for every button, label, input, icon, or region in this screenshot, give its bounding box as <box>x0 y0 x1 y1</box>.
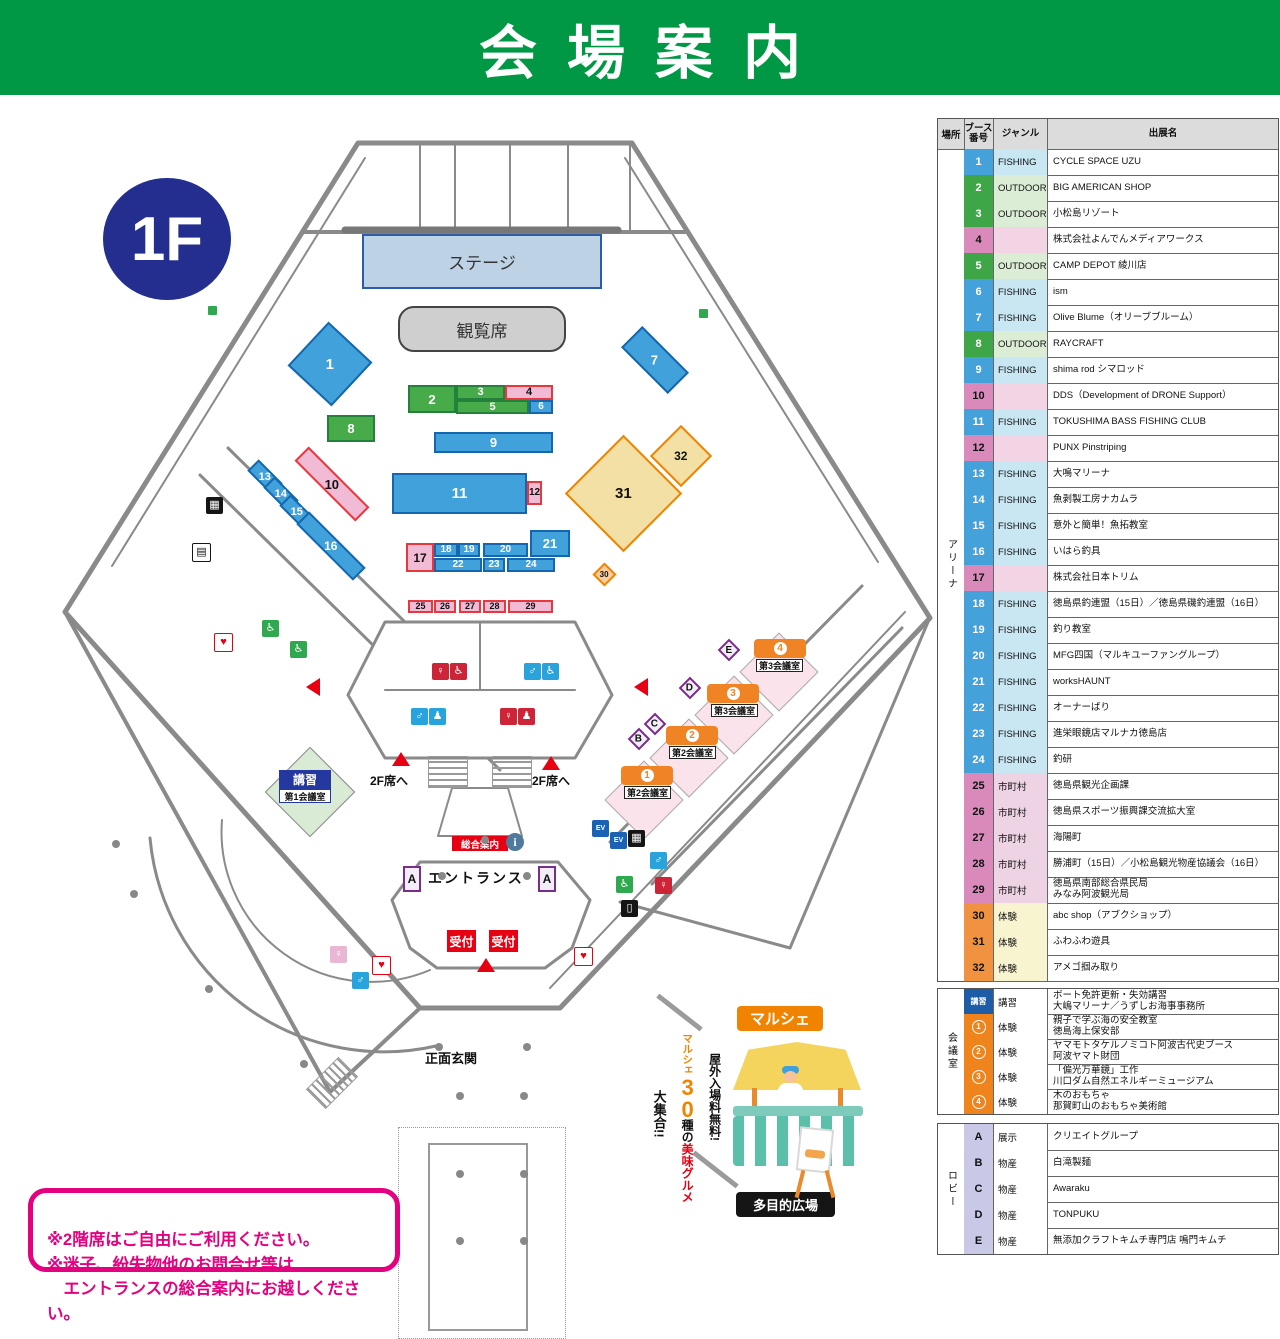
to-2f-text: 2F席へ <box>532 774 570 788</box>
booth-number: 27 <box>465 602 475 611</box>
floor-map: ステージ 観覧席 講習 第1会議室 2F席へ 2F席へ 総合案内 i エントラン… <box>0 95 935 1283</box>
booth-27: 27 <box>459 600 481 613</box>
wheelchair-icon: ♿ <box>262 620 279 637</box>
notice-box: ※2階席はご自由にご利用ください。 ※迷子、紛失物他のお問合せ等は エントランス… <box>28 1188 400 1272</box>
booth-number: 24 <box>525 560 536 570</box>
table-cell-name: ボート免許更新・失効講習 大嶋マリーナ／うずしお海事事務所 <box>1048 989 1278 1014</box>
entrance-arrow <box>477 958 495 972</box>
table-row: D物産TONPUKU <box>964 1202 1278 1229</box>
table-cell-number: 23 <box>964 721 994 747</box>
entrance-arrow <box>306 678 320 696</box>
exit-icon <box>208 306 217 315</box>
table-cell-number: 26 <box>964 799 994 825</box>
table-cell-genre: OUTDOOR <box>994 331 1048 357</box>
marche-badge-label: マルシェ <box>750 1008 810 1029</box>
booth-12: 12 <box>527 481 542 505</box>
booth-23: 23 <box>483 558 505 572</box>
table-cell-name: PUNX Pinstriping <box>1048 435 1278 461</box>
table-row: 20FISHINGMFG四国（マルキユーファングループ） <box>964 643 1278 670</box>
table-row: 13FISHING大鳴マリーナ <box>964 461 1278 488</box>
table-row: 31体験ふわふわ遊具 <box>964 929 1278 956</box>
stage-label: ステージ <box>448 249 516 274</box>
table-header-cell: ブース 番号 <box>964 119 994 149</box>
womens-toilet-icon: ♀ <box>500 708 517 725</box>
table-cell-name: DDS（Development of DRONE Support） <box>1048 383 1278 409</box>
aed-icon: ♥ <box>372 956 391 975</box>
elevator-icon: EV <box>592 820 609 837</box>
table-cell-name: abc shop（アブクショップ） <box>1048 903 1278 929</box>
table-cell-genre: OUTDOOR <box>994 253 1048 279</box>
table-cell-name: 進栄眼鏡店マルナカ徳島店 <box>1048 721 1278 747</box>
wheelchair-icon: ♿ <box>290 641 307 658</box>
booth-number: 21 <box>543 537 557 550</box>
table-cell-genre <box>994 435 1048 461</box>
multi-plaza-badge: 多目的広場 <box>736 1192 835 1217</box>
table-cell-genre: FISHING <box>994 357 1048 383</box>
table-row: 講習講習ボート免許更新・失効講習 大嶋マリーナ／うずしお海事事務所 <box>964 989 1278 1015</box>
audience-seats-label: 観覧席 <box>457 317 508 342</box>
table-cell-number: 13 <box>964 461 994 487</box>
table-cell-number: 11 <box>964 409 994 435</box>
lobby-badge-label: E <box>726 644 733 655</box>
booth-number: 11 <box>452 486 468 501</box>
pillar-dot <box>456 1237 464 1245</box>
meeting-room-badge: 3 <box>707 684 759 703</box>
table-cell-genre: 市町村 <box>994 851 1048 877</box>
place-column: ロビー <box>938 1124 965 1254</box>
main-gate-label: 正面玄関 <box>425 1048 477 1067</box>
coin-locker-icon: ▤ <box>192 543 211 562</box>
booth-24: 24 <box>507 558 555 572</box>
table-cell-number: 9 <box>964 357 994 383</box>
table-cell-name: shima rod シマロッド <box>1048 357 1278 383</box>
booth-number: 2 <box>972 1045 986 1059</box>
table-cell-number: 27 <box>964 825 994 851</box>
table-cell-name: TONPUKU <box>1048 1202 1278 1228</box>
table-row: 28市町村勝浦町（15日）／小松島観光物産協議会（16日） <box>964 851 1278 878</box>
table-cell-number: 24 <box>964 747 994 773</box>
table-row: 2体験ヤマモトタケルノミコト阿波古代史ブース 阿波ヤマト財団 <box>964 1039 1278 1065</box>
mens-toilet-icon: ♂ <box>524 663 541 680</box>
reception-badge: 受付 <box>489 930 518 952</box>
table-cell-number: 14 <box>964 487 994 513</box>
promo-free-text: 屋外入場料無料! <box>708 1053 722 1141</box>
meeting-room-badge: 2 <box>666 726 718 745</box>
table-row: 1体験親子で学ぶ海の安全教室 徳島海上保安部 <box>964 1014 1278 1040</box>
table-row: 12PUNX Pinstriping <box>964 435 1278 462</box>
table-cell-genre: 展示 <box>994 1124 1048 1150</box>
meeting-room-number: 3 <box>727 687 740 700</box>
reception-label: 受付 <box>491 933 515 950</box>
table-cell-genre: 物産 <box>994 1150 1048 1176</box>
promo-free-line: 屋外入場料無料! <box>708 1053 721 1141</box>
table-row: 6FISHINGism <box>964 279 1278 306</box>
table-section-2: ロビーA展示クリエイトグループB物産白滝製麺C物産AwarakuD物産TONPU… <box>937 1123 1279 1255</box>
table-header-row: 場所ブース 番号ジャンル出展名 <box>938 119 1278 150</box>
table-cell-genre: FISHING <box>994 513 1048 539</box>
table-cell-genre: 市町村 <box>994 825 1048 851</box>
table-row: 25市町村徳島県観光企画課 <box>964 773 1278 800</box>
table-cell-name: CAMP DEPOT 綾川店 <box>1048 253 1278 279</box>
table-cell-genre: OUTDOOR <box>994 201 1048 227</box>
table-cell-genre: 体験 <box>994 903 1048 929</box>
multi-plaza-label: 多目的広場 <box>753 1195 818 1214</box>
womens-toilet-icon: ♀ <box>655 877 672 894</box>
table-cell-number: 28 <box>964 851 994 877</box>
table-cell-genre: 体験 <box>994 1039 1048 1064</box>
table-cell-number: 32 <box>964 955 994 981</box>
table-row: 11FISHINGTOKUSHIMA BASS FISHING CLUB <box>964 409 1278 436</box>
booth-number: 20 <box>500 545 511 555</box>
table-cell-name: 親子で学ぶ海の安全教室 徳島海上保安部 <box>1048 1014 1278 1039</box>
pillar-dot <box>112 840 120 848</box>
table-row: 32体験アメゴ掴み取り <box>964 955 1278 982</box>
table-row: A展示クリエイトグループ <box>964 1124 1278 1151</box>
reception-label: 受付 <box>449 933 473 950</box>
exit-icon <box>699 309 708 318</box>
booth-4: 4 <box>505 385 553 400</box>
booth-11: 11 <box>392 473 527 514</box>
booth-number: 10 <box>325 478 339 491</box>
booth-number: 32 <box>674 450 687 462</box>
promo-num-text: 30 <box>675 1075 700 1119</box>
meeting-room-label: 第3会議室 <box>756 659 803 672</box>
table-cell-name: 木のおもちゃ 那賀町山のおもちゃ美術館 <box>1048 1089 1278 1114</box>
baby-change-icon: ♟ <box>518 708 535 725</box>
booth-28: 28 <box>483 600 506 613</box>
table-row: 9FISHINGshima rod シマロッド <box>964 357 1278 384</box>
booth-number: 18 <box>440 545 451 555</box>
table-row: E物産無添加クラフトキムチ専門店 鳴門キムチ <box>964 1228 1278 1254</box>
booth-29: 29 <box>508 600 553 613</box>
table-row: 5OUTDOORCAMP DEPOT 綾川店 <box>964 253 1278 280</box>
table-cell-name: ism <box>1048 279 1278 305</box>
table-cell-number: 18 <box>964 591 994 617</box>
table-cell-genre <box>994 227 1048 253</box>
booth-25: 25 <box>408 600 433 613</box>
table-row: 26市町村徳島県スポーツ振興課交流拡大室 <box>964 799 1278 826</box>
marche-badge: マルシェ <box>737 1006 823 1031</box>
table-cell-genre: FISHING <box>994 487 1048 513</box>
table-row: 30体験abc shop（アブクショップ） <box>964 903 1278 930</box>
booth-17: 17 <box>406 543 434 572</box>
area-a-badge: A <box>538 866 556 892</box>
table-cell-genre: 体験 <box>994 955 1048 981</box>
table-section-1: 会議室講習講習ボート免許更新・失効講習 大嶋マリーナ／うずしお海事事務所1体験親… <box>937 988 1279 1115</box>
table-cell-genre: 市町村 <box>994 799 1048 825</box>
to-2f-text: 2F席へ <box>370 774 408 788</box>
booth-number: 12 <box>529 488 540 498</box>
table-cell-name: TOKUSHIMA BASS FISHING CLUB <box>1048 409 1278 435</box>
table-cell-name: 徳島県観光企画課 <box>1048 773 1278 799</box>
table-cell-genre: FISHING <box>994 305 1048 331</box>
reception-badge: 受付 <box>447 930 476 952</box>
meeting-room-number: 4 <box>774 642 787 655</box>
table-cell-genre <box>994 383 1048 409</box>
table-cell-name: 大鳴マリーナ <box>1048 461 1278 487</box>
pillar-dot <box>300 1060 308 1068</box>
meeting-room-number: 2 <box>686 729 699 742</box>
table-row: B物産白滝製麺 <box>964 1150 1278 1177</box>
table-cell-number: 17 <box>964 565 994 591</box>
booth-number: 3 <box>972 1070 986 1084</box>
table-cell-genre: FISHING <box>994 643 1048 669</box>
table-cell-genre: FISHING <box>994 409 1048 435</box>
to-2f-label: 2F席へ <box>370 772 408 789</box>
table-cell-genre: 物産 <box>994 1228 1048 1254</box>
table-cell-number: 2 <box>964 1039 994 1064</box>
trash-icon: ▯ <box>621 900 638 917</box>
booth-3: 3 <box>456 385 505 400</box>
table-cell-genre: FISHING <box>994 539 1048 565</box>
booth-number: 29 <box>525 602 535 611</box>
booth-number: 5 <box>489 402 495 413</box>
table-row: 18FISHING徳島県釣連盟（15日）／徳島県磯釣連盟（16日） <box>964 591 1278 618</box>
entrance-arrow <box>542 756 560 770</box>
pillar-dot <box>456 1092 464 1100</box>
elevator-icon: EV <box>610 832 627 849</box>
table-cell-number: 16 <box>964 539 994 565</box>
table-cell-name: 徳島県スポーツ振興課交流拡大室 <box>1048 799 1278 825</box>
stall-person-body <box>778 1083 803 1103</box>
pillar-dot <box>481 836 489 844</box>
table-cell-genre: FISHING <box>994 747 1048 773</box>
table-header-cell: ジャンル <box>994 119 1048 149</box>
table-cell-number: 29 <box>964 877 994 903</box>
table-cell-number: 7 <box>964 305 994 331</box>
table-cell-number: A <box>964 1124 994 1150</box>
entrance-arrow <box>634 678 648 696</box>
area-a-label: A <box>408 872 417 886</box>
booth-number: 6 <box>538 402 544 412</box>
table-row: 21FISHINGworksHAUNT <box>964 669 1278 696</box>
table-row: 22FISHINGオーナーばり <box>964 695 1278 722</box>
table-cell-number: 3 <box>964 1064 994 1089</box>
booth-5: 5 <box>456 400 529 414</box>
table-cell-genre <box>994 565 1048 591</box>
main-gate-text: 正面玄関 <box>425 1051 477 1066</box>
table-cell-name: 海陽町 <box>1048 825 1278 851</box>
booth-number: 17 <box>413 552 426 564</box>
aed-icon: ♥ <box>214 633 233 652</box>
table-cell-name: 小松島リゾート <box>1048 201 1278 227</box>
meeting-room-1-label: 第1会議室 <box>279 789 331 803</box>
lobby-badge-label: B <box>635 733 642 744</box>
booth-18: 18 <box>434 543 458 557</box>
baby-change-icon: ♟ <box>429 708 446 725</box>
meeting-room-badge: 4 <box>754 639 806 658</box>
table-row: 4株式会社よんでんメディアワークス <box>964 227 1278 254</box>
aed-icon: ♥ <box>574 947 593 966</box>
entrance-arrow <box>392 752 410 766</box>
info-icon-glyph: i <box>513 835 516 850</box>
booth-number: 8 <box>347 422 354 435</box>
to-2f-label: 2F席へ <box>532 772 570 789</box>
table-cell-number: E <box>964 1228 994 1254</box>
meeting-room-label: 第2会議室 <box>624 786 671 799</box>
booth-number: 7 <box>651 353 658 366</box>
table-cell-name: MFG四国（マルキユーファングループ） <box>1048 643 1278 669</box>
booth-26: 26 <box>434 600 456 613</box>
table-cell-name: いはら釣具 <box>1048 539 1278 565</box>
stall-counter-top <box>733 1106 863 1116</box>
meeting-room-1-text: 第1会議室 <box>284 790 325 803</box>
table-row: 27市町村海陽町 <box>964 825 1278 852</box>
table-cell-name: 「偏光万華鏡」工作 川口ダム自然エネルギーミュージアム <box>1048 1064 1278 1089</box>
table-row: 7FISHINGOlive Blume（オリーブブルーム） <box>964 305 1278 332</box>
table-cell-number: 20 <box>964 643 994 669</box>
table-cell-number: 5 <box>964 253 994 279</box>
booth-19: 19 <box>458 543 480 557</box>
table-cell-name: 意外と簡単！魚拓教室 <box>1048 513 1278 539</box>
promo-marche-text: マルシェ <box>681 1033 693 1075</box>
kosyu-badge-label: 講習 <box>293 771 317 788</box>
booth-number: 25 <box>415 602 425 611</box>
place-label: 会議室 <box>944 1032 959 1071</box>
pillar-dot <box>438 872 446 880</box>
mens-toilet-icon: ♂ <box>650 852 667 869</box>
booth-number: 1 <box>326 357 334 372</box>
page-title: 会場案内 <box>449 6 831 90</box>
table-row: 4体験木のおもちゃ 那賀町山のおもちゃ美術館 <box>964 1089 1278 1114</box>
booth-6: 6 <box>529 400 553 414</box>
table-cell-name: アメゴ掴み取り <box>1048 955 1278 981</box>
mens-toilet-icon: ♂ <box>411 708 428 725</box>
table-cell-name: BIG AMERICAN SHOP <box>1048 175 1278 201</box>
table-cell-genre: FISHING <box>994 669 1048 695</box>
table-row: 8OUTDOORRAYCRAFT <box>964 331 1278 358</box>
table-cell-genre: FISHING <box>994 279 1048 305</box>
place-label: アリーナ <box>944 539 959 591</box>
table-row: 23FISHING進栄眼鏡店マルナカ徳島店 <box>964 721 1278 748</box>
lobby-badge-label: D <box>686 682 693 693</box>
meeting-room-label: 第2会議室 <box>669 746 716 759</box>
table-row: 2OUTDOORBIG AMERICAN SHOP <box>964 175 1278 202</box>
booth-number: 28 <box>489 602 499 611</box>
info-badge: 総合案内 <box>452 836 508 851</box>
pillar-dot <box>130 890 138 898</box>
promo-gather-text: 大集合!! <box>652 1090 667 1138</box>
table-cell-name: 株式会社日本トリム <box>1048 565 1278 591</box>
booth-number: 30 <box>600 571 609 579</box>
pillar-dot <box>520 1237 528 1245</box>
table-cell-name: 徳島県南部総合県民局 みなみ阿波観光局 <box>1048 877 1278 903</box>
table-cell-genre: FISHING <box>994 721 1048 747</box>
table-cell-number: B <box>964 1150 994 1176</box>
table-row: 24FISHING釣研 <box>964 747 1278 774</box>
table-cell-name: 徳島県釣連盟（15日）／徳島県磯釣連盟（16日） <box>1048 591 1278 617</box>
table-cell-genre: OUTDOOR <box>994 175 1048 201</box>
table-cell-name: 魚剥製工房ナカムラ <box>1048 487 1278 513</box>
table-cell-genre: 講習 <box>994 989 1048 1014</box>
booth-number: 19 <box>463 545 474 555</box>
promo-gourmet-text: 美味グルメ <box>680 1143 694 1203</box>
table-cell-number: 4 <box>964 1089 994 1114</box>
booth-number: 4 <box>972 1095 986 1109</box>
table-cell-name: 釣研 <box>1048 747 1278 773</box>
table-header-cell: 出展名 <box>1048 119 1278 149</box>
vending-icon: ▦ <box>628 830 645 847</box>
table-row: 29市町村徳島県南部総合県民局 みなみ阿波観光局 <box>964 877 1278 904</box>
table-cell-name: CYCLE SPACE UZU <box>1048 149 1278 175</box>
promo-gather-line: 大集合!! <box>652 1090 666 1138</box>
table-cell-name: RAYCRAFT <box>1048 331 1278 357</box>
table-row: 14FISHING魚剥製工房ナカムラ <box>964 487 1278 514</box>
table-cell-genre: 体験 <box>994 929 1048 955</box>
title-banner: 会場案内 <box>0 0 1280 95</box>
table-cell-genre: 体験 <box>994 1014 1048 1039</box>
meeting-room-number: 1 <box>641 769 654 782</box>
table-cell-genre: 市町村 <box>994 773 1048 799</box>
pillar-dot <box>523 1043 531 1051</box>
table-cell-name: worksHAUNT <box>1048 669 1278 695</box>
table-row: 16FISHINGいはら釣具 <box>964 539 1278 566</box>
table-cell-name: ヤマモトタケルノミコト阿波古代史ブース 阿波ヤマト財団 <box>1048 1039 1278 1064</box>
table-cell-genre: FISHING <box>994 617 1048 643</box>
booth-number: 31 <box>615 486 632 501</box>
info-badge-label: 総合案内 <box>461 837 499 851</box>
table-cell-number: 4 <box>964 227 994 253</box>
table-cell-number: 1 <box>964 1014 994 1039</box>
table-cell-number: 19 <box>964 617 994 643</box>
table-row: 3OUTDOOR小松島リゾート <box>964 201 1278 228</box>
table-cell-number: 31 <box>964 929 994 955</box>
pillar-dot <box>205 985 213 993</box>
booth-number: 4 <box>526 387 532 398</box>
table-cell-genre: FISHING <box>994 149 1048 175</box>
table-row: 3体験「偏光万華鏡」工作 川口ダム自然エネルギーミュージアム <box>964 1064 1278 1090</box>
table-cell-number: 1 <box>964 149 994 175</box>
table-cell-name: Awaraku <box>1048 1176 1278 1202</box>
table-row: 19FISHING釣り教室 <box>964 617 1278 644</box>
table-cell-number: 25 <box>964 773 994 799</box>
pillar-dot <box>435 1043 443 1051</box>
table-cell-genre: 体験 <box>994 1064 1048 1089</box>
meeting-room-badge: 1 <box>621 766 673 785</box>
booth-21: 21 <box>530 530 570 557</box>
table-cell-name: ふわふわ遊具 <box>1048 929 1278 955</box>
table-row: 10DDS（Development of DRONE Support） <box>964 383 1278 410</box>
booth-number: 2 <box>428 393 435 406</box>
booth-number: 1 <box>972 1020 986 1034</box>
table-cell-genre: FISHING <box>994 461 1048 487</box>
booth-number: 23 <box>488 560 499 570</box>
promo-main-line: マルシェ30種の美味グルメ <box>676 1033 699 1203</box>
table-row: 1FISHINGCYCLE SPACE UZU <box>964 149 1278 176</box>
info-icon: i <box>506 833 524 851</box>
table-cell-genre: 物産 <box>994 1176 1048 1202</box>
table-row: C物産Awaraku <box>964 1176 1278 1203</box>
booth-8: 8 <box>327 415 375 442</box>
booth-number: 15 <box>291 507 303 518</box>
womens-toilet-icon: ♀ <box>330 946 347 963</box>
booth-9: 9 <box>434 432 553 453</box>
table-cell-genre: 体験 <box>994 1089 1048 1114</box>
stairs <box>428 756 468 788</box>
canopy-inner <box>428 1143 528 1331</box>
booth-number: 3 <box>477 387 483 398</box>
pillar-dot <box>520 1170 528 1178</box>
table-cell-number: 12 <box>964 435 994 461</box>
table-cell-number: 6 <box>964 279 994 305</box>
stage: ステージ <box>362 234 602 289</box>
pillar-dot <box>520 1092 528 1100</box>
table-cell-number: C <box>964 1176 994 1202</box>
table-cell-number: 30 <box>964 903 994 929</box>
booth-2: 2 <box>408 385 456 413</box>
audience-seats: 観覧席 <box>398 306 566 352</box>
table-cell-number: 3 <box>964 201 994 227</box>
